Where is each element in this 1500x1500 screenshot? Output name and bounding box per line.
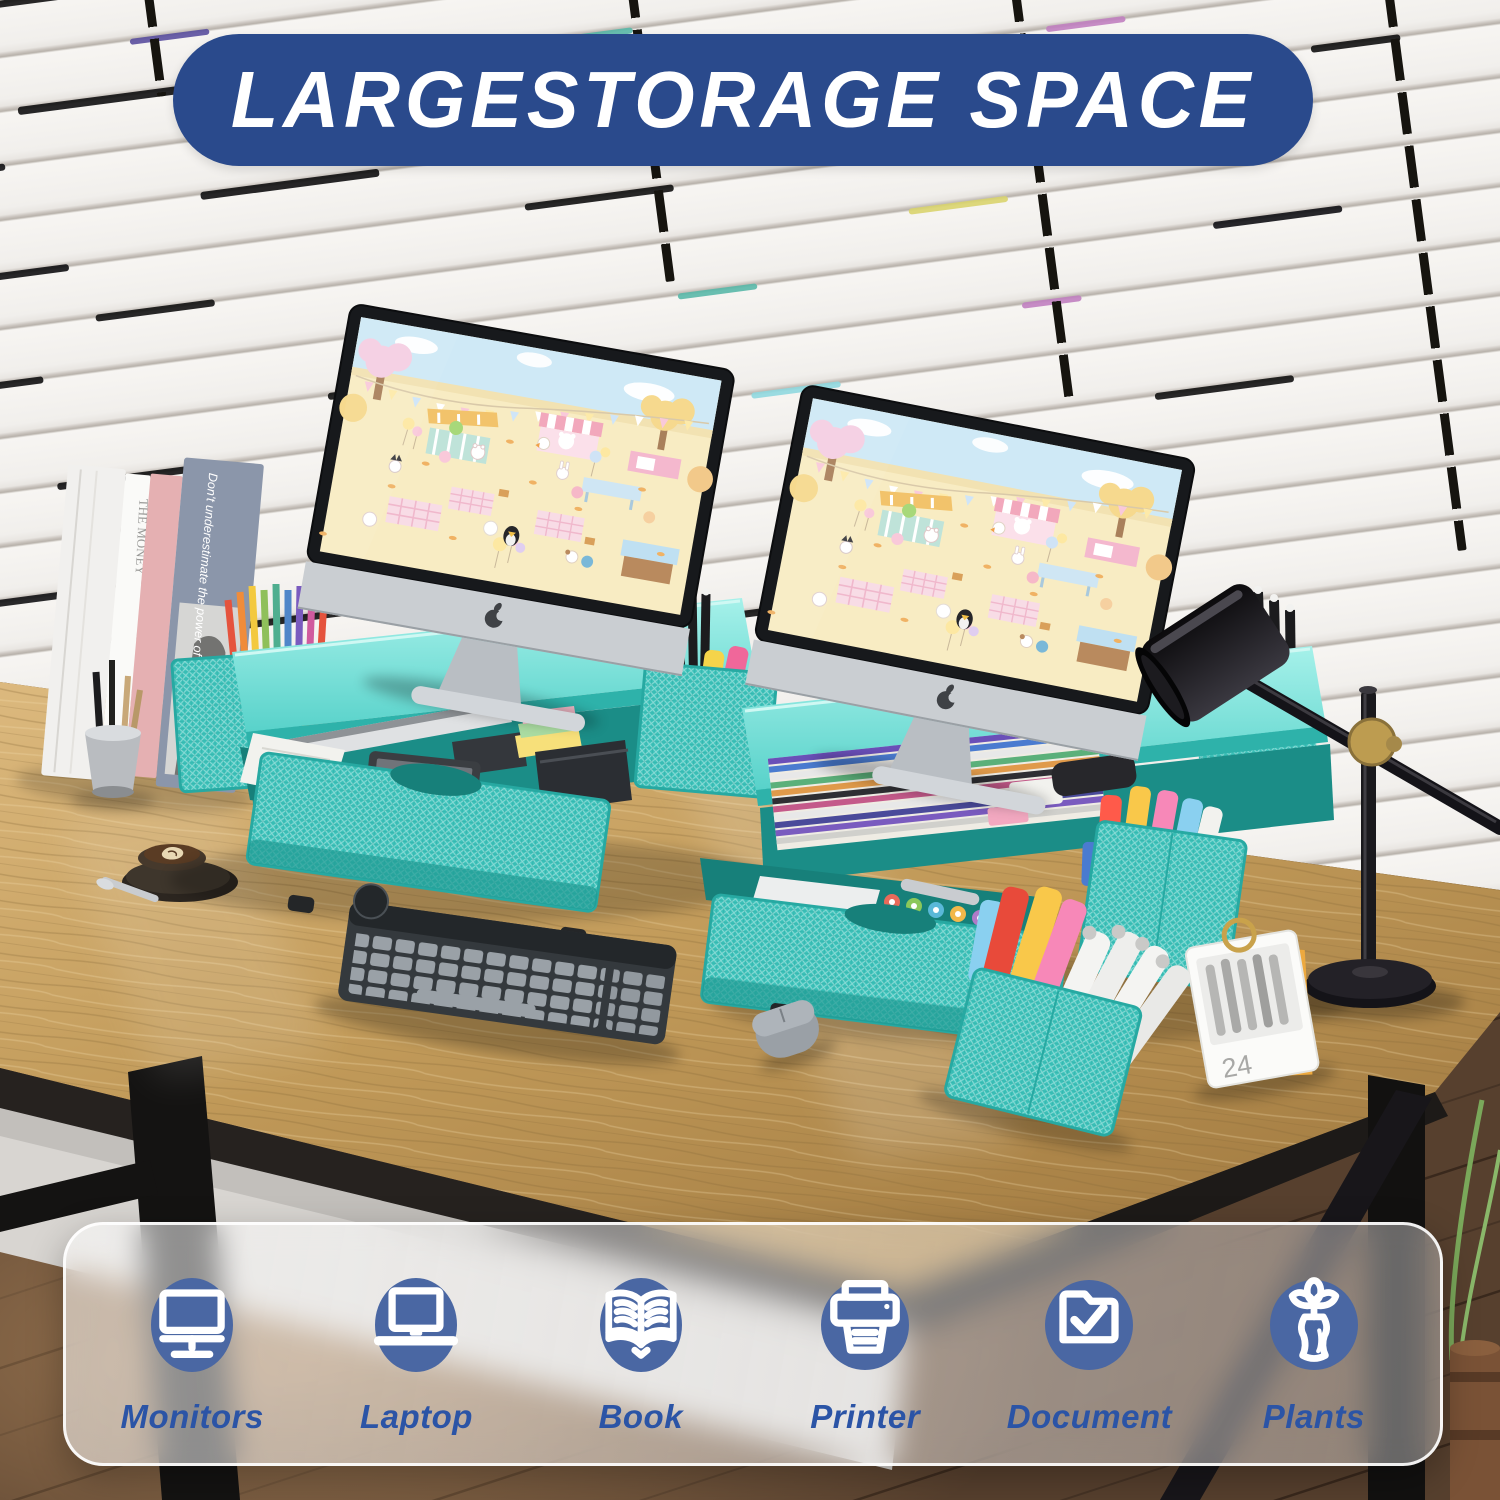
plants-icon <box>1262 1268 1366 1372</box>
calendar-day: 24 <box>1220 1049 1255 1084</box>
feature-list: Monitors Laptop <box>66 1252 1440 1436</box>
product-marketing-image: THE MONEY Don't underestimate the power … <box>0 0 1500 1500</box>
monitor-icon <box>140 1268 244 1372</box>
feature-label: Laptop <box>360 1398 473 1436</box>
feature-label: Document <box>1007 1398 1172 1436</box>
printer-icon <box>813 1268 917 1372</box>
title-banner: LARGESTORAGE SPACE <box>173 34 1313 166</box>
feature-panel: Monitors Laptop <box>63 1222 1443 1466</box>
feature-book: Book <box>541 1252 741 1436</box>
feature-laptop: Laptop <box>316 1252 516 1436</box>
document-icon <box>1037 1268 1141 1372</box>
feature-monitors: Monitors <box>92 1252 292 1436</box>
laptop-icon <box>364 1268 468 1372</box>
feature-plants: Plants <box>1214 1252 1414 1436</box>
feature-label: Monitors <box>120 1398 263 1436</box>
feature-label: Book <box>599 1398 684 1436</box>
feature-label: Plants <box>1263 1398 1365 1436</box>
feature-printer: Printer <box>765 1252 965 1436</box>
book-icon <box>589 1268 693 1372</box>
title-banner-text: LARGESTORAGE SPACE <box>231 54 1255 146</box>
feature-document: Document <box>989 1252 1189 1436</box>
feature-label: Printer <box>810 1398 920 1436</box>
